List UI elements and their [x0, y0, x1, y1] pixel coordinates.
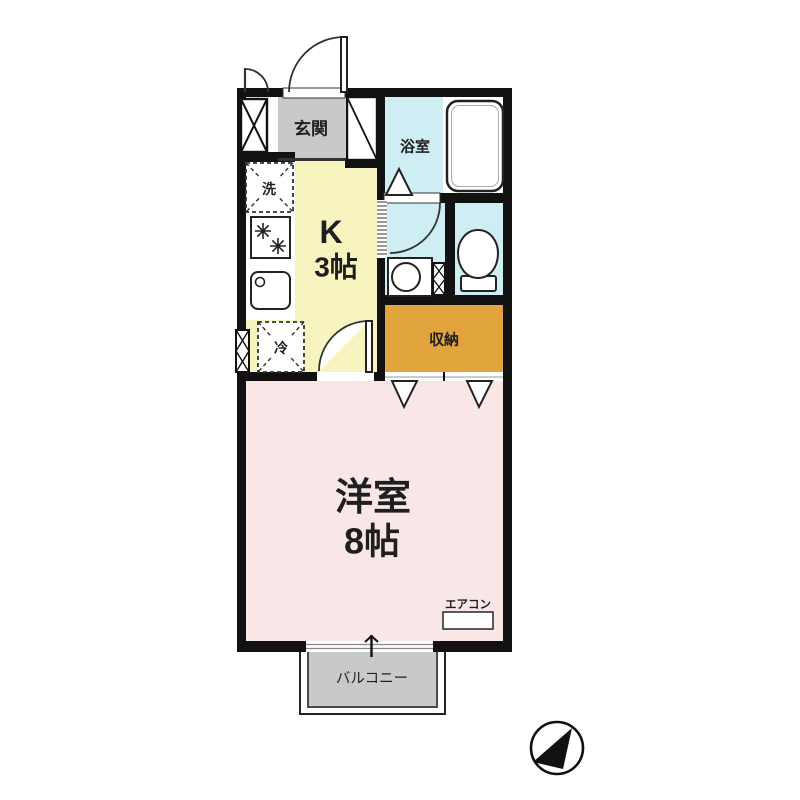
kitchen-label: K [319, 214, 342, 250]
aircon-unit: エアコン [443, 598, 493, 629]
floor-plan: バルコニー [0, 0, 800, 800]
western-room-label: 洋室 [335, 476, 411, 519]
stove-icon [251, 217, 290, 258]
balcony-label: バルコニー [336, 671, 408, 687]
genkan-label: 玄関 [294, 119, 328, 139]
floor-plan-page: バルコニー [0, 0, 800, 800]
sink-icon [251, 272, 290, 309]
pipe-duct [433, 263, 445, 295]
meter-box [241, 99, 267, 152]
fridge-space: 冷 [258, 322, 304, 372]
compass-north-icon [531, 722, 583, 774]
western-room-size-label: 8帖 [344, 521, 400, 562]
entrance-door-icon [289, 37, 347, 92]
storage-label: 収納 [429, 331, 459, 349]
toilet-icon [458, 230, 498, 291]
aircon-label: エアコン [445, 598, 491, 611]
fridge-label: 冷 [274, 340, 288, 356]
bathroom-label: 浴室 [400, 138, 430, 156]
kitchen-size-label: 3帖 [314, 252, 358, 283]
washbasin-icon [388, 258, 432, 296]
accordion-door-icon [377, 200, 387, 258]
washer-label: 洗 [262, 181, 276, 197]
kitchen-window-icon [236, 330, 249, 372]
washing-machine-space: 洗 [246, 163, 293, 212]
shoe-cabinet [347, 97, 377, 160]
bathtub-icon [447, 101, 503, 191]
